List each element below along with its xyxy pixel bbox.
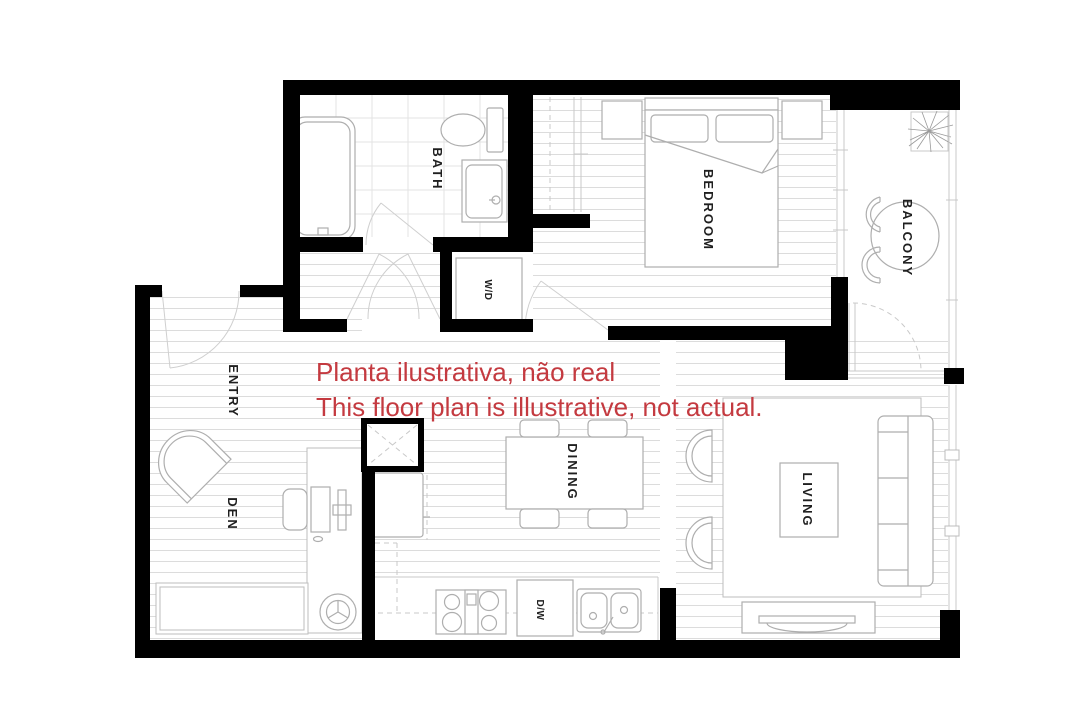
room-label-bath: BATH bbox=[430, 147, 445, 190]
nightstand-right bbox=[782, 101, 822, 139]
toilet bbox=[441, 108, 503, 152]
room-label-dishwasher: D/W bbox=[534, 600, 545, 621]
room-label-balcony: BALCONY bbox=[900, 199, 915, 277]
den-side-table bbox=[320, 594, 356, 630]
bath-door bbox=[366, 203, 433, 245]
disclaimer-line-1: Planta ilustrativa, não real bbox=[316, 357, 615, 387]
tv-console bbox=[742, 602, 875, 633]
room-label-dining: DINING bbox=[565, 443, 580, 501]
stove bbox=[436, 590, 506, 634]
room-label-bedroom: BEDROOM bbox=[701, 169, 716, 251]
pantry-closet bbox=[364, 421, 421, 469]
room-label-entry: ENTRY bbox=[226, 364, 241, 418]
nightstand-left bbox=[602, 101, 642, 139]
disclaimer-line-2: This floor plan is illustrative, not act… bbox=[316, 392, 763, 422]
balcony-plant bbox=[908, 111, 953, 152]
floor-plan-svg: BATH W/D BEDROOM BALCONY ENTRY DEN DININ… bbox=[0, 0, 1080, 720]
room-label-den: DEN bbox=[225, 497, 240, 530]
sofa bbox=[878, 416, 933, 586]
floor-plan-image: BATH W/D BEDROOM BALCONY ENTRY DEN DININ… bbox=[0, 0, 1080, 720]
room-label-living: LIVING bbox=[800, 472, 815, 527]
kitchen-sink bbox=[577, 589, 641, 634]
room-label-washer-dryer: W/D bbox=[482, 280, 493, 301]
refrigerator bbox=[371, 473, 430, 537]
den-rug bbox=[156, 583, 308, 634]
bathtub bbox=[291, 117, 355, 240]
vanity-sink bbox=[462, 160, 507, 222]
